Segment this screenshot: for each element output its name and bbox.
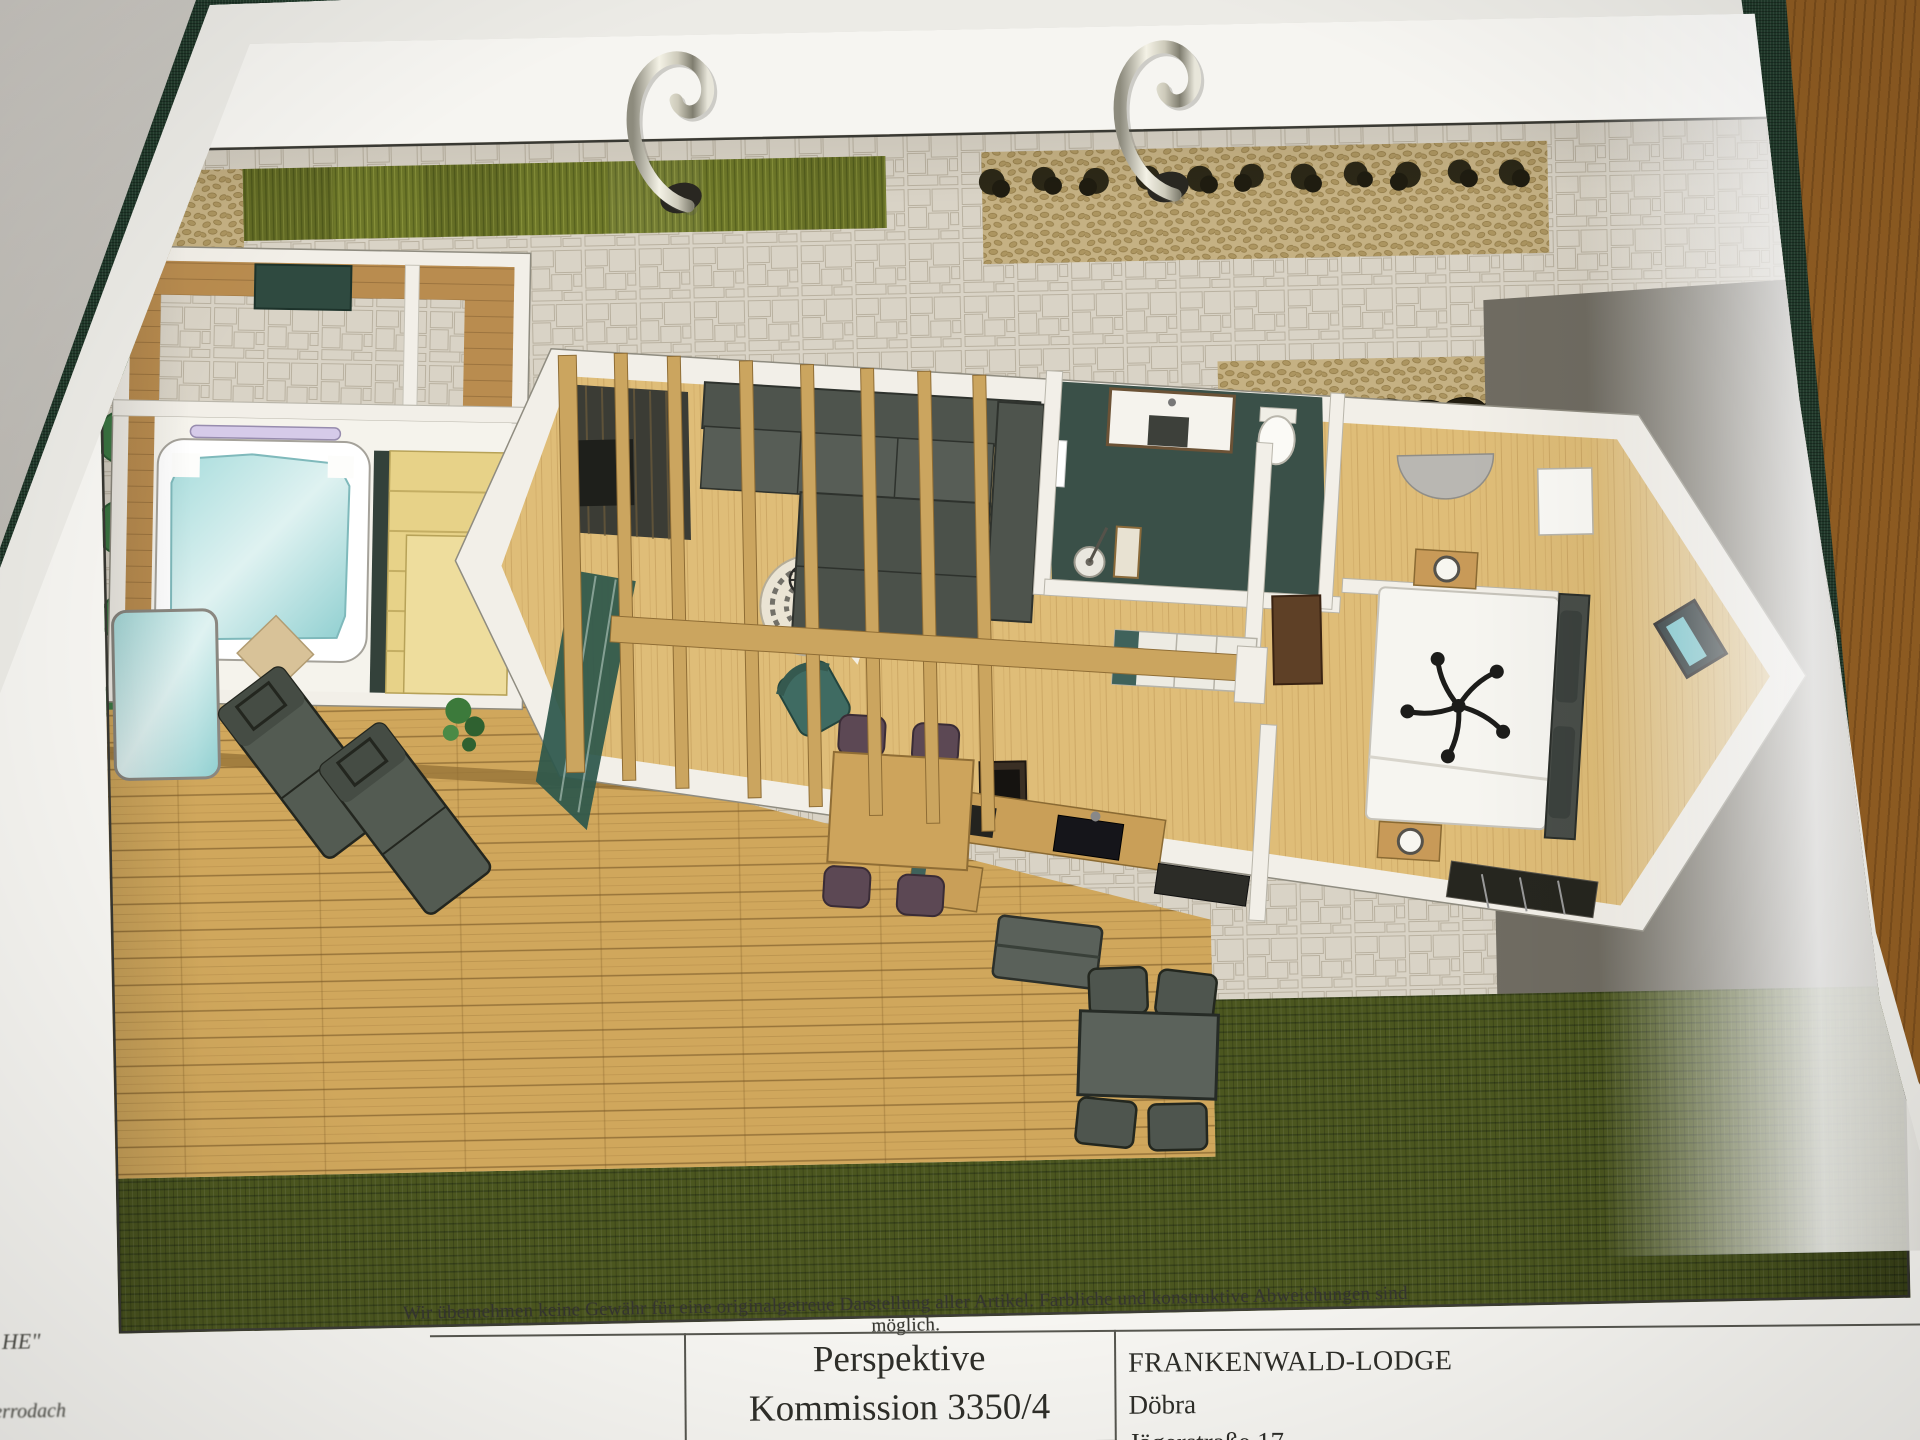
binder-ring[interactable]	[1120, 47, 1195, 195]
binder-ring[interactable]	[633, 58, 708, 206]
rings-overlay	[0, 0, 1920, 1440]
photo-stage: Wir übernehmen keine Gewähr für eine ori…	[0, 0, 1920, 1440]
